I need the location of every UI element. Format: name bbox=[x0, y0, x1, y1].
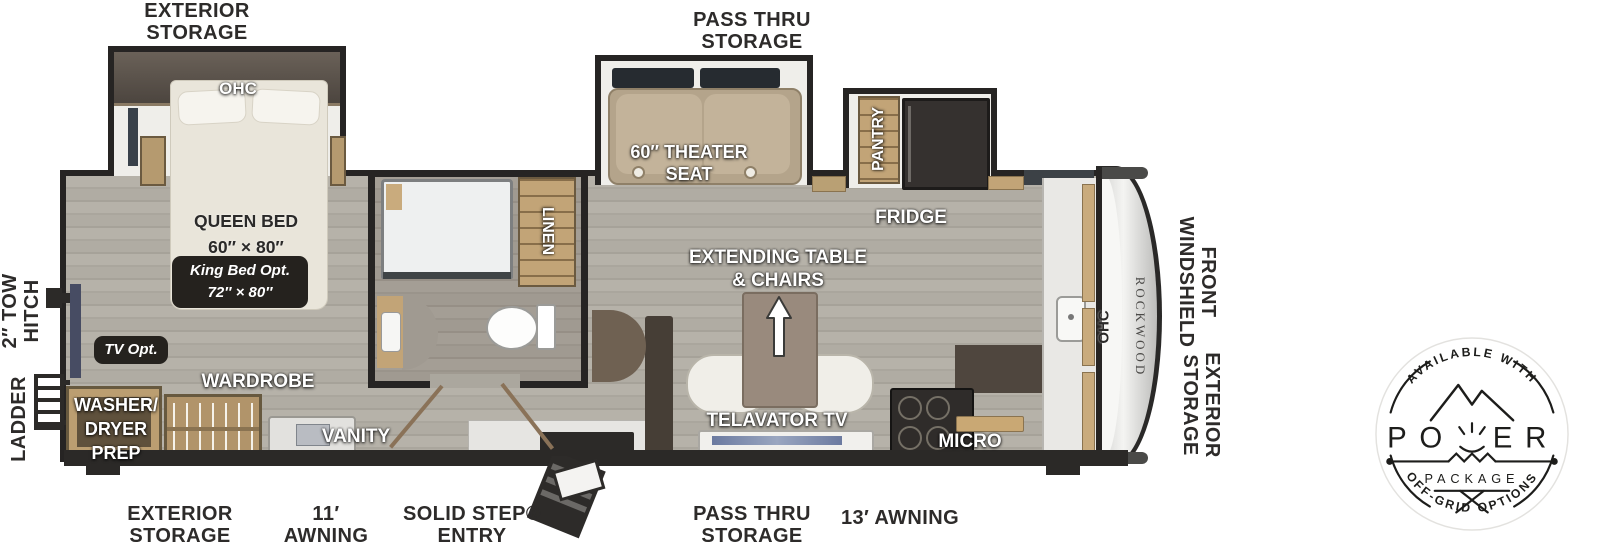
fridge bbox=[902, 98, 990, 190]
label-front-ohc: OHC bbox=[1096, 310, 1113, 343]
tall-cabinet bbox=[645, 316, 673, 456]
label-bedroom-ohc: OHC bbox=[219, 79, 257, 99]
label-vanity: VANITY bbox=[322, 426, 390, 448]
badge-subtitle: PACKAGE bbox=[1425, 471, 1520, 486]
chassis-foot-left bbox=[86, 466, 120, 475]
front-ohc-strip-2 bbox=[1082, 308, 1095, 366]
burner-2 bbox=[926, 396, 950, 420]
shower-glass-door bbox=[383, 272, 511, 279]
label-solid-step-entry: SOLID STEP® ENTRY bbox=[403, 503, 541, 547]
label-micro: MICRO bbox=[938, 431, 1001, 453]
power-package-badge: AVAILABLE WITH PO ER PACKAGE OFF-GRID OP… bbox=[1374, 336, 1570, 532]
label-front-windshield: FRONT WINDSHIELD bbox=[1175, 217, 1219, 348]
telavator-tv-screen bbox=[712, 436, 842, 445]
front-cap-trim-top bbox=[1102, 167, 1148, 179]
toilet-bowl bbox=[486, 306, 538, 350]
pillow-right bbox=[251, 88, 321, 126]
tv-option-badge: TV Opt. bbox=[94, 336, 168, 364]
label-exterior-storage-top: EXTERIOR STORAGE bbox=[144, 0, 249, 44]
counter-top-mid bbox=[812, 176, 846, 192]
label-13ft-awning: 13′ AWNING bbox=[841, 507, 959, 529]
floorplan-canvas: EXTERIOR STORAGE PASS THRU STORAGE EXTER… bbox=[0, 0, 1600, 549]
label-exterior-storage-front: EXTERIOR STORAGE bbox=[1179, 352, 1223, 457]
label-tow-hitch: 2″ TOW HITCH bbox=[0, 274, 43, 349]
rockwood-brand: ROCKWOOD bbox=[1132, 277, 1148, 378]
bedroom-tv-option-location bbox=[70, 284, 81, 378]
label-linen: LINEN bbox=[538, 207, 556, 255]
label-fridge: FRIDGE bbox=[875, 207, 947, 229]
label-telavator-tv: TELAVATOR TV bbox=[706, 410, 847, 432]
bedroom-window bbox=[128, 108, 138, 166]
kitchen-counter-dark bbox=[955, 345, 1055, 393]
ladder-arm-top bbox=[60, 380, 70, 385]
front-ohc-strip-1 bbox=[1082, 184, 1095, 302]
bath-sink-basin bbox=[381, 312, 401, 352]
nightstand-left bbox=[140, 136, 166, 186]
label-11ft-awning: 11′ AWNING bbox=[284, 503, 369, 547]
label-pass-thru-storage-bottom: PASS THRU STORAGE bbox=[693, 503, 811, 547]
label-pass-thru-storage-top: PASS THRU STORAGE bbox=[693, 9, 811, 53]
label-ladder: LADDER bbox=[8, 376, 30, 462]
counter-top-front bbox=[988, 176, 1024, 190]
front-ohc-strip-3 bbox=[1082, 372, 1095, 454]
chassis-foot-right bbox=[1046, 466, 1080, 475]
fridge-handle bbox=[908, 106, 911, 182]
label-pantry: PANTRY bbox=[870, 107, 888, 171]
toilet-tank bbox=[536, 304, 556, 350]
cutting-board bbox=[956, 416, 1024, 432]
label-washer-dryer-prep: WASHER/ DRYER PREP bbox=[74, 393, 158, 465]
nightstand-right bbox=[330, 136, 346, 186]
theater-window-right bbox=[700, 68, 780, 88]
badge-title-left: PO bbox=[1387, 422, 1455, 455]
label-wardrobe: WARDROBE bbox=[202, 371, 315, 393]
label-extending-table: EXTENDING TABLE & CHAIRS bbox=[689, 246, 867, 292]
burner-1 bbox=[898, 396, 922, 420]
king-bed-option-badge: King Bed Opt. 72″ × 80″ bbox=[172, 256, 308, 308]
label-exterior-storage-bottom: EXTERIOR STORAGE bbox=[127, 503, 232, 547]
label-theater-seat: 60″ THEATER SEAT bbox=[630, 141, 747, 185]
table-extend-arrow-icon bbox=[764, 294, 794, 366]
tow-hitch-pin bbox=[58, 293, 70, 303]
kitchen-faucet bbox=[1068, 314, 1074, 320]
badge-title-right: ER bbox=[1493, 422, 1559, 455]
theater-window-left bbox=[612, 68, 694, 88]
shower-head bbox=[386, 184, 402, 210]
burner-3 bbox=[898, 426, 922, 450]
label-queen-bed: QUEEN BED 60″ × 80″ bbox=[194, 208, 298, 260]
